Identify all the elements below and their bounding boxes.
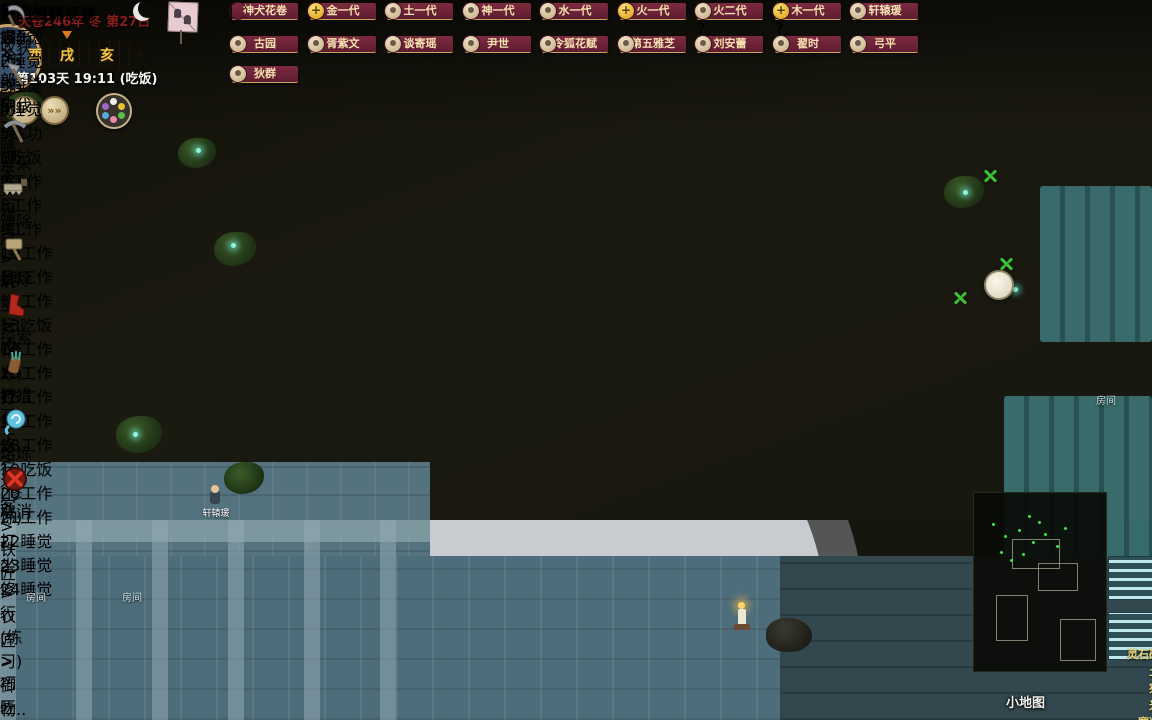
monk-icon: [694, 2, 712, 20]
candle-base: [734, 624, 750, 630]
tool-button[interactable]: 狩猎: [0, 348, 32, 406]
character-card[interactable]: 古园: [232, 36, 298, 53]
monk-icon: [617, 35, 635, 53]
room-label: 房间: [122, 589, 142, 604]
tool-label: 熔炼: [0, 440, 32, 464]
saw-icon: [0, 174, 32, 208]
minimap-building: [1060, 619, 1096, 661]
tool-label: 收获: [0, 34, 32, 58]
minimap[interactable]: [973, 492, 1107, 672]
plus-icon: +: [772, 2, 790, 20]
monk-icon: [462, 2, 480, 20]
character-card[interactable]: 神犬花卷: [232, 3, 298, 20]
monk-icon: [384, 2, 402, 20]
axe-icon: [0, 58, 32, 92]
job-column-header: 巧匠: [0, 670, 64, 718]
pickaxe-icon: [0, 116, 32, 150]
character-card[interactable]: 第五雅芝: [620, 36, 686, 53]
time-char: 亥: [100, 45, 114, 65]
world-creature: [766, 618, 812, 652]
glow-dot: [1013, 287, 1018, 292]
character-card[interactable]: 翟时: [775, 36, 841, 53]
minimap-building: [996, 595, 1028, 641]
minimap-building: [1038, 563, 1078, 591]
job-column-header: 铁匠: [0, 536, 64, 584]
column-separator-icon: >: [0, 651, 64, 670]
candle-flame: [738, 602, 745, 609]
boot-icon: [0, 290, 32, 324]
palette-button[interactable]: [96, 93, 132, 129]
world-terrain-dark: [0, 0, 1152, 520]
palette-dot: [110, 98, 117, 105]
character-card[interactable]: 轩辕瑗: [852, 3, 918, 20]
monk-icon: [539, 35, 557, 53]
character-card[interactable]: 刘安蕾: [697, 36, 763, 53]
palette-dot: [102, 103, 109, 110]
glow-dot: [133, 432, 138, 437]
minimap-dot: [1018, 529, 1021, 532]
tool-button[interactable]: 收获: [0, 0, 32, 58]
quiver-icon: [0, 348, 32, 382]
tool-label: 狩猎: [0, 382, 32, 406]
plus-icon: +: [617, 2, 635, 20]
palette-dot: [118, 112, 125, 119]
character-card[interactable]: +火一代: [620, 3, 686, 20]
minimap-dot: [1064, 527, 1067, 530]
cancel-icon: [0, 464, 32, 498]
palette-dot: [118, 103, 125, 110]
edge-label: 光: [1127, 697, 1152, 714]
tool-button[interactable]: 砍伐: [0, 58, 32, 116]
edge-label: 灵石矿: [1127, 646, 1152, 663]
game-screen: 小地图 轩辕瑗 灵石矿土宛光寒冷 天苍246年 冬 第27日 酉戌亥 第103天…: [0, 0, 1152, 720]
room-label: 房间: [26, 589, 46, 604]
character-card[interactable]: 火二代?: [697, 3, 763, 20]
paw-icon: [229, 2, 247, 20]
minimap-dot: [1000, 551, 1003, 554]
job-column-header: 衣匠: [0, 603, 64, 651]
glow-dot: [231, 243, 236, 248]
candle: [738, 609, 746, 625]
character-card[interactable]: 尹世: [465, 36, 531, 53]
flag-pole: [180, 30, 182, 44]
monk-icon: [229, 35, 247, 53]
minimap-dot: [1004, 535, 1007, 538]
minimap-dot: [1022, 553, 1025, 556]
glow-dot: [963, 190, 968, 195]
tool-label: 砍伐: [0, 92, 32, 116]
monk-icon: [694, 35, 712, 53]
minimap-dot: [1028, 515, 1031, 518]
tool-button[interactable]: 清除: [0, 174, 32, 232]
tool-label: 探索: [0, 324, 32, 348]
character-card[interactable]: 狄群: [232, 66, 298, 83]
npc-sprite-head: [211, 485, 219, 493]
edge-label: 宛: [1127, 680, 1152, 697]
character-card[interactable]: 神一代: [465, 3, 531, 20]
world-shelf-crates: [1040, 186, 1152, 342]
monk-icon: [849, 35, 867, 53]
character-card[interactable]: 水一代: [542, 3, 608, 20]
monk-icon: [539, 2, 557, 20]
character-card[interactable]: 弓平: [852, 36, 918, 53]
action-toolbar: 收获砍伐开采清除拆除探索狩猎熔炼取消: [0, 0, 32, 522]
minimap-dot: [1032, 541, 1035, 544]
room-label: 房间: [1096, 392, 1116, 407]
character-card[interactable]: 胥紫文: [310, 36, 376, 53]
horn-icon: [0, 406, 32, 440]
character-card[interactable]: +木一代?: [775, 3, 841, 20]
tool-button[interactable]: 熔炼: [0, 406, 32, 464]
glow-dot: [196, 148, 201, 153]
tool-label: 清除: [0, 208, 32, 232]
tool-button[interactable]: 探索: [0, 290, 32, 348]
monk-icon: [849, 2, 867, 20]
green-x-mark: [982, 168, 998, 184]
tool-label: 拆除: [0, 266, 32, 290]
minimap-dot: [1038, 521, 1041, 524]
minimap-dot: [1056, 545, 1059, 548]
mallet-icon: [0, 232, 32, 266]
tool-label: 开采: [0, 150, 32, 174]
character-card[interactable]: +金一代: [310, 3, 376, 20]
tool-label: 取消: [0, 498, 32, 522]
edge-label: 土: [1127, 663, 1152, 680]
monk-icon: [462, 35, 480, 53]
moon-icon: [133, 2, 152, 21]
sickle-icon: [0, 0, 32, 34]
palette-dot: [110, 116, 117, 123]
world-edge-labels: 灵石矿土宛光寒冷: [1127, 646, 1152, 720]
green-x-mark: [952, 290, 968, 306]
cancel-button[interactable]: 取消: [0, 464, 32, 522]
npc-name-label: 轩辕瑗: [186, 506, 246, 519]
plus-icon: +: [307, 2, 325, 20]
edge-label: 寒冷: [1127, 714, 1152, 720]
monk-icon: [384, 35, 402, 53]
minimap-dot: [1044, 533, 1047, 536]
character-card[interactable]: 土一代: [387, 3, 453, 20]
tool-button[interactable]: 开采: [0, 116, 32, 174]
character-card[interactable]: 令狐花赋: [542, 36, 608, 53]
monk-icon: [229, 65, 247, 83]
flag-sign[interactable]: [167, 1, 198, 32]
character-card[interactable]: 谈寄瑶: [387, 36, 453, 53]
monk-icon: [772, 35, 790, 53]
tool-button[interactable]: 拆除: [0, 232, 32, 290]
palette-dot: [102, 112, 109, 119]
world-window-slats: [1108, 556, 1152, 600]
minimap-dot: [1010, 559, 1013, 562]
minimap-label: 小地图: [1006, 692, 1045, 711]
minimap-dot: [992, 523, 995, 526]
world-plate-marker: [984, 270, 1014, 300]
monk-icon: [307, 35, 325, 53]
